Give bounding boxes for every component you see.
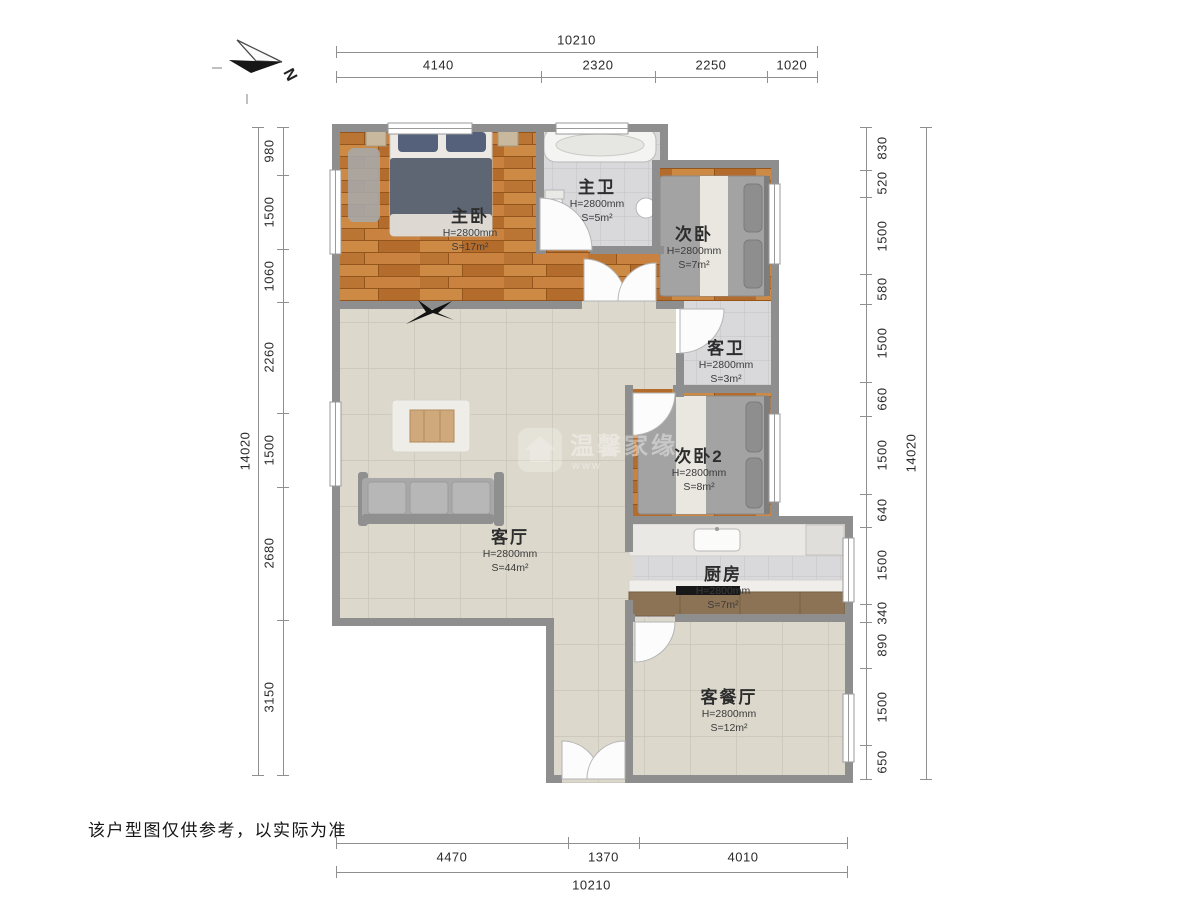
dim-tick [817, 46, 818, 58]
window [388, 123, 472, 134]
window [843, 538, 854, 602]
room-height: H=2800mm [701, 708, 758, 722]
floorplan-canvas: N 温馨家缘 www 主卧 H=2800mm S=17m² 主卫 H=2800m… [0, 0, 1200, 900]
room-height: H=2800mm [699, 359, 754, 373]
dim-tick [920, 779, 932, 780]
dim-label: 580 [875, 278, 890, 301]
room-height: H=2800mm [443, 227, 498, 241]
window [769, 184, 780, 264]
room-name: 次卧2 [672, 442, 727, 467]
dim-line [258, 127, 259, 775]
dim-tick [639, 837, 640, 849]
dim-label: 4010 [728, 850, 759, 865]
room-label-bedroom2: 次卧 H=2800mm S=7m² [667, 220, 722, 272]
dim-label: 830 [875, 137, 890, 160]
dim-tick [860, 382, 872, 383]
window [769, 414, 780, 502]
dim-label: 1500 [262, 197, 277, 228]
room-label-guest-bath: 客卫 H=2800mm S=3m² [699, 334, 754, 386]
dim-tick [860, 416, 872, 417]
dim-label: 14020 [238, 432, 253, 471]
room-area: S=5m² [570, 212, 625, 226]
room-area: S=12m² [701, 722, 758, 736]
dim-tick [860, 745, 872, 746]
dim-tick [767, 71, 768, 83]
room-area: S=3m² [699, 373, 754, 387]
dim-tick [277, 413, 289, 414]
dim-tick [336, 71, 337, 83]
dim-label: 1020 [776, 58, 807, 73]
dim-label: 1500 [875, 220, 890, 251]
room-label-bedroom3: 次卧2 H=2800mm S=8m² [672, 442, 727, 494]
dim-label: 2260 [262, 342, 277, 373]
dim-label: 520 [875, 172, 890, 195]
room-height: H=2800mm [483, 548, 538, 562]
dim-label: 1500 [262, 435, 277, 466]
room-area: S=7m² [667, 259, 722, 273]
dim-label: 1500 [875, 439, 890, 470]
room-name: 次卧 [667, 220, 722, 245]
dim-tick [655, 71, 656, 83]
room-label-living: 客厅 H=2800mm S=44m² [483, 523, 538, 575]
room-label-master-bedroom: 主卧 H=2800mm S=17m² [443, 202, 498, 254]
dim-tick [860, 170, 872, 171]
dim-label: 3150 [262, 682, 277, 713]
dim-label: 10210 [572, 878, 611, 893]
dim-tick [860, 494, 872, 495]
dim-tick [277, 302, 289, 303]
dim-tick [277, 620, 289, 621]
dim-tick [860, 622, 872, 623]
dim-label: 640 [875, 499, 890, 522]
dim-tick [277, 249, 289, 250]
room-area: S=8m² [672, 481, 727, 495]
north-arrow: N [212, 40, 300, 104]
dim-label: 980 [262, 140, 277, 163]
room-name: 厨房 [696, 560, 751, 585]
floorplan-svg: N 温馨家缘 www [0, 0, 1200, 900]
dim-label: 1500 [875, 328, 890, 359]
north-label: N [279, 66, 299, 84]
dim-label: 1500 [875, 550, 890, 581]
room-name: 主卧 [443, 202, 498, 227]
dim-tick [860, 304, 872, 305]
window [330, 170, 341, 254]
dim-label: 1060 [262, 260, 277, 291]
room-name: 客餐厅 [701, 683, 758, 708]
floor-nook [629, 301, 676, 389]
dim-line [336, 872, 847, 873]
room-height: H=2800mm [570, 198, 625, 212]
dim-tick [920, 127, 932, 128]
dim-tick [252, 775, 264, 776]
room-area: S=17m² [443, 241, 498, 255]
dim-line [336, 77, 817, 78]
dim-tick [817, 71, 818, 83]
dim-tick [252, 127, 264, 128]
dim-tick [860, 527, 872, 528]
dim-label: 4140 [423, 58, 454, 73]
dim-label: 10210 [557, 33, 596, 48]
dim-label: 2250 [695, 58, 726, 73]
dim-tick [277, 487, 289, 488]
dim-line [283, 127, 284, 775]
dim-tick [860, 127, 872, 128]
dim-tick [336, 46, 337, 58]
window [556, 123, 628, 134]
room-label-kitchen: 厨房 H=2800mm S=7m² [696, 560, 751, 612]
dim-tick [860, 604, 872, 605]
dim-tick [860, 274, 872, 275]
dim-tick [860, 197, 872, 198]
dim-tick [336, 866, 337, 878]
dim-tick [277, 127, 289, 128]
dim-label: 660 [875, 387, 890, 410]
dim-tick [847, 866, 848, 878]
dim-tick [277, 175, 289, 176]
dim-tick [860, 668, 872, 669]
dim-tick [860, 779, 872, 780]
room-name: 客卫 [699, 334, 754, 359]
dim-label: 1500 [875, 691, 890, 722]
dim-line [866, 127, 867, 779]
window [843, 694, 854, 762]
watermark-url: www [571, 460, 602, 472]
dim-label: 340 [875, 601, 890, 624]
room-height: H=2800mm [667, 245, 722, 259]
room-name: 客厅 [483, 523, 538, 548]
room-label-dining: 客餐厅 H=2800mm S=12m² [701, 683, 758, 735]
dim-label: 890 [875, 633, 890, 656]
dim-tick [847, 837, 848, 849]
room-name: 主卫 [570, 173, 625, 198]
disclaimer-text: 该户型图仅供参考，以实际为准 [88, 816, 347, 841]
dim-tick [541, 71, 542, 83]
dim-line [926, 127, 927, 779]
room-label-master-bath: 主卫 H=2800mm S=5m² [570, 173, 625, 225]
dim-label: 650 [875, 751, 890, 774]
dim-label: 14020 [904, 434, 919, 473]
dim-label: 2320 [583, 58, 614, 73]
watermark-text: 温馨家缘 [570, 432, 678, 460]
dim-label: 4470 [436, 850, 467, 865]
room-height: H=2800mm [672, 467, 727, 481]
dim-label: 1370 [588, 850, 619, 865]
dim-tick [277, 775, 289, 776]
dim-label: 2680 [262, 538, 277, 569]
dim-tick [568, 837, 569, 849]
room-area: S=44m² [483, 562, 538, 576]
dim-line [336, 843, 847, 844]
window [330, 402, 341, 486]
room-height: H=2800mm [696, 585, 751, 599]
room-area: S=7m² [696, 599, 751, 613]
dim-line [336, 52, 817, 53]
